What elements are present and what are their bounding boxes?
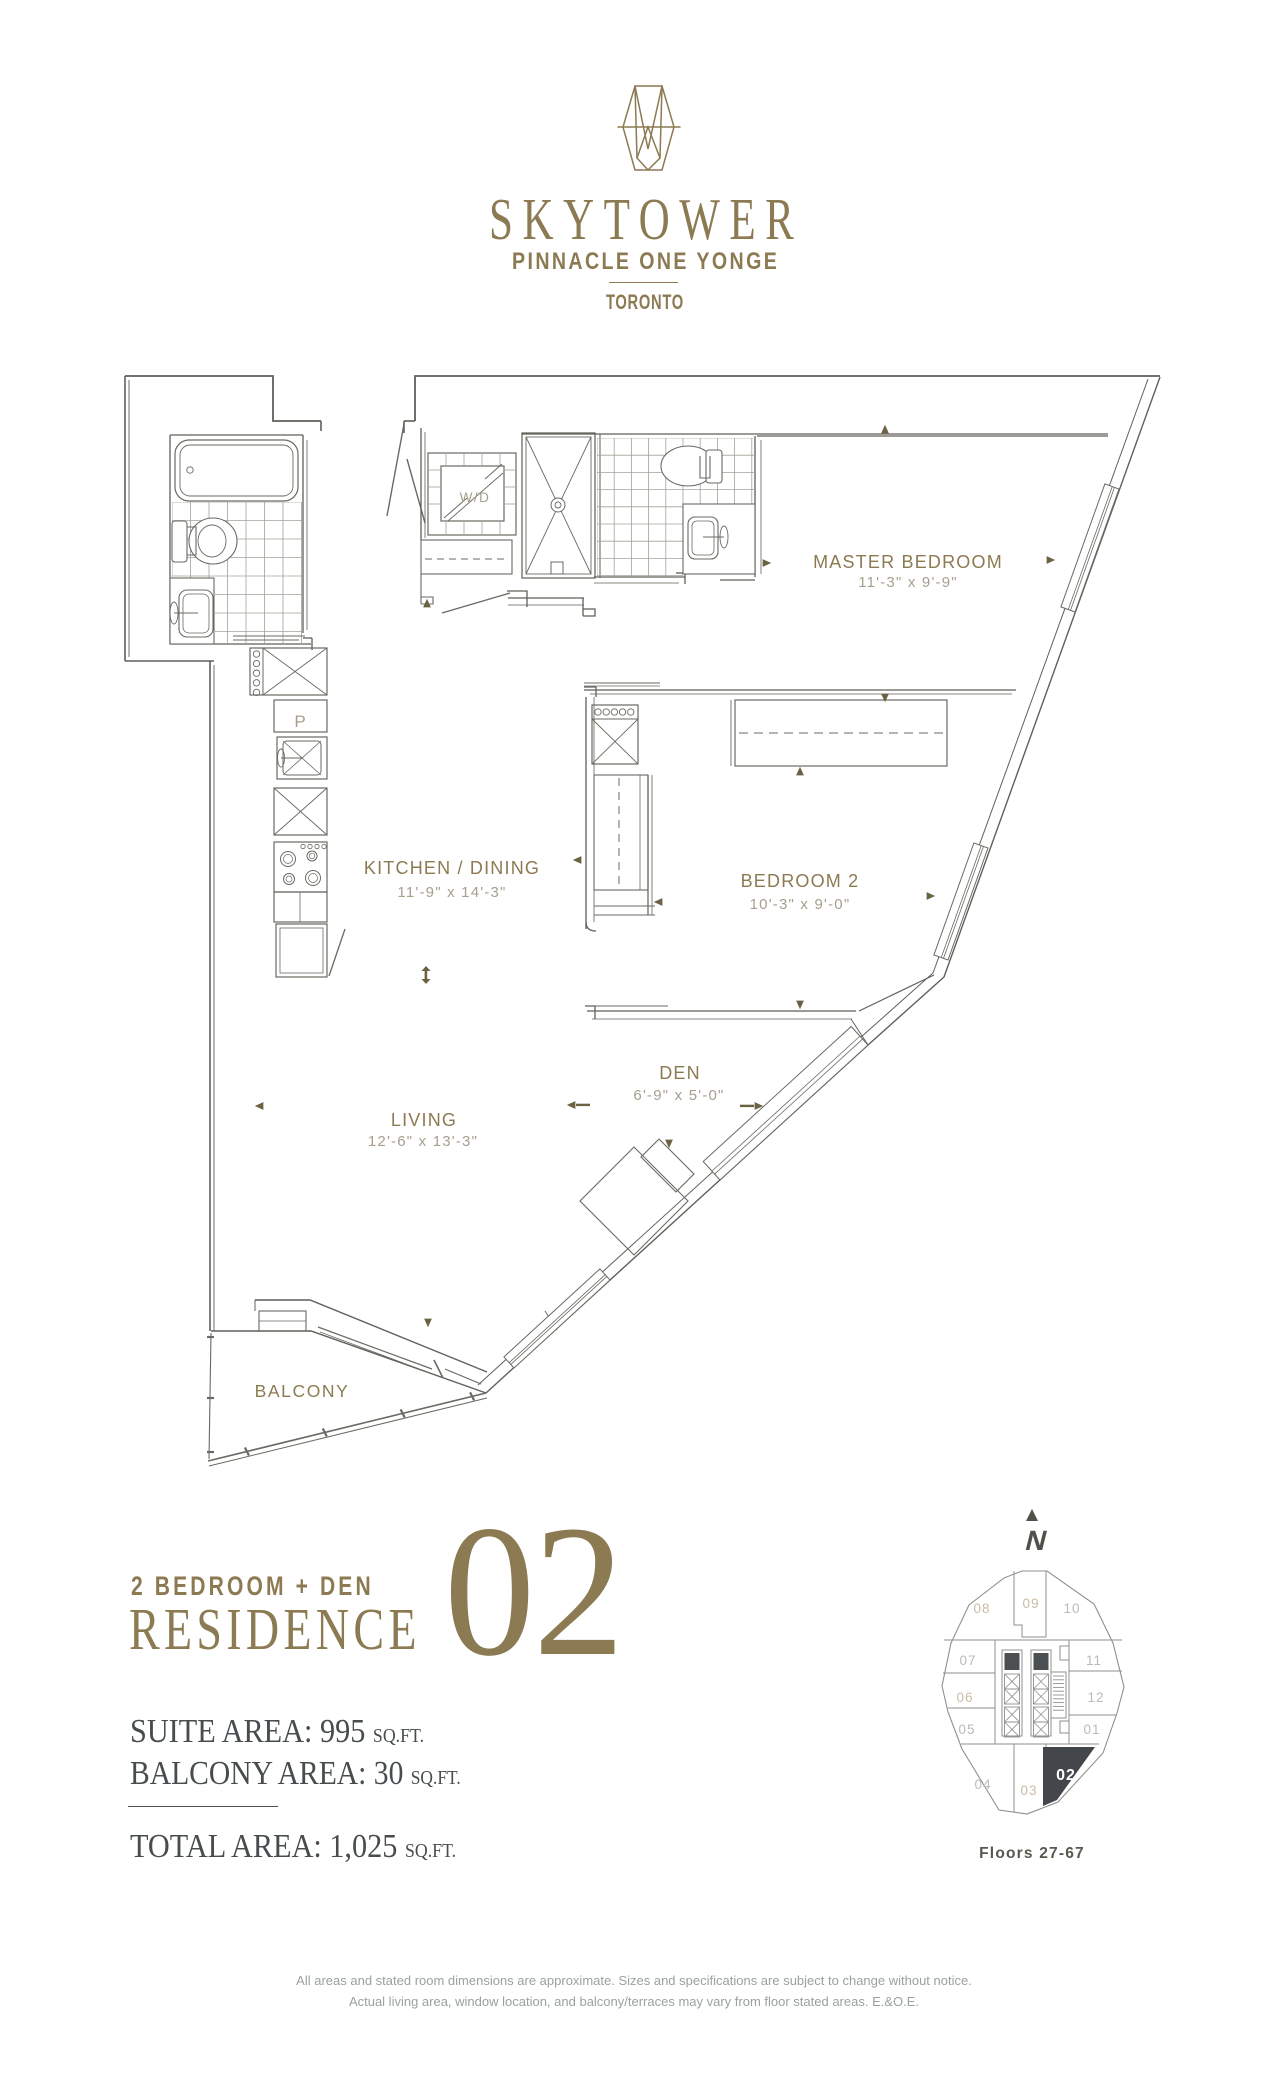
- svg-text:MASTER BEDROOM: MASTER BEDROOM: [813, 552, 1003, 572]
- svg-text:11'-9" x 14'-3": 11'-9" x 14'-3": [397, 884, 506, 901]
- svg-text:11: 11: [1086, 1653, 1102, 1668]
- svg-text:02: 02: [1056, 1767, 1076, 1784]
- svg-text:N: N: [1022, 1525, 1050, 1557]
- svg-text:LIVING: LIVING: [391, 1110, 457, 1130]
- svg-text:11'-3" x 9'-9": 11'-3" x 9'-9": [858, 574, 958, 591]
- svg-text:BALCONY: BALCONY: [255, 1381, 350, 1401]
- svg-text:Floors 27-67: Floors 27-67: [979, 1845, 1085, 1862]
- svg-text:10: 10: [1063, 1601, 1080, 1616]
- svg-text:05: 05: [958, 1722, 975, 1737]
- svg-text:01: 01: [1083, 1722, 1100, 1737]
- svg-text:12'-6" x 13'-3": 12'-6" x 13'-3": [368, 1133, 478, 1150]
- svg-text:06: 06: [956, 1690, 973, 1705]
- svg-text:10'-3" x 9'-0": 10'-3" x 9'-0": [750, 896, 851, 913]
- svg-text:03: 03: [1020, 1783, 1037, 1798]
- svg-text:08: 08: [973, 1601, 990, 1616]
- svg-text:P: P: [294, 712, 305, 731]
- svg-text:12: 12: [1087, 1690, 1104, 1705]
- svg-text:W/D: W/D: [460, 490, 491, 505]
- svg-text:07: 07: [959, 1653, 976, 1668]
- svg-text:6'-9" x 5'-0": 6'-9" x 5'-0": [633, 1087, 724, 1104]
- svg-text:KITCHEN / DINING: KITCHEN / DINING: [364, 858, 540, 878]
- svg-text:09: 09: [1022, 1596, 1039, 1611]
- svg-text:DEN: DEN: [659, 1063, 701, 1083]
- svg-text:04: 04: [974, 1777, 991, 1792]
- svg-text:BEDROOM 2: BEDROOM 2: [741, 871, 860, 891]
